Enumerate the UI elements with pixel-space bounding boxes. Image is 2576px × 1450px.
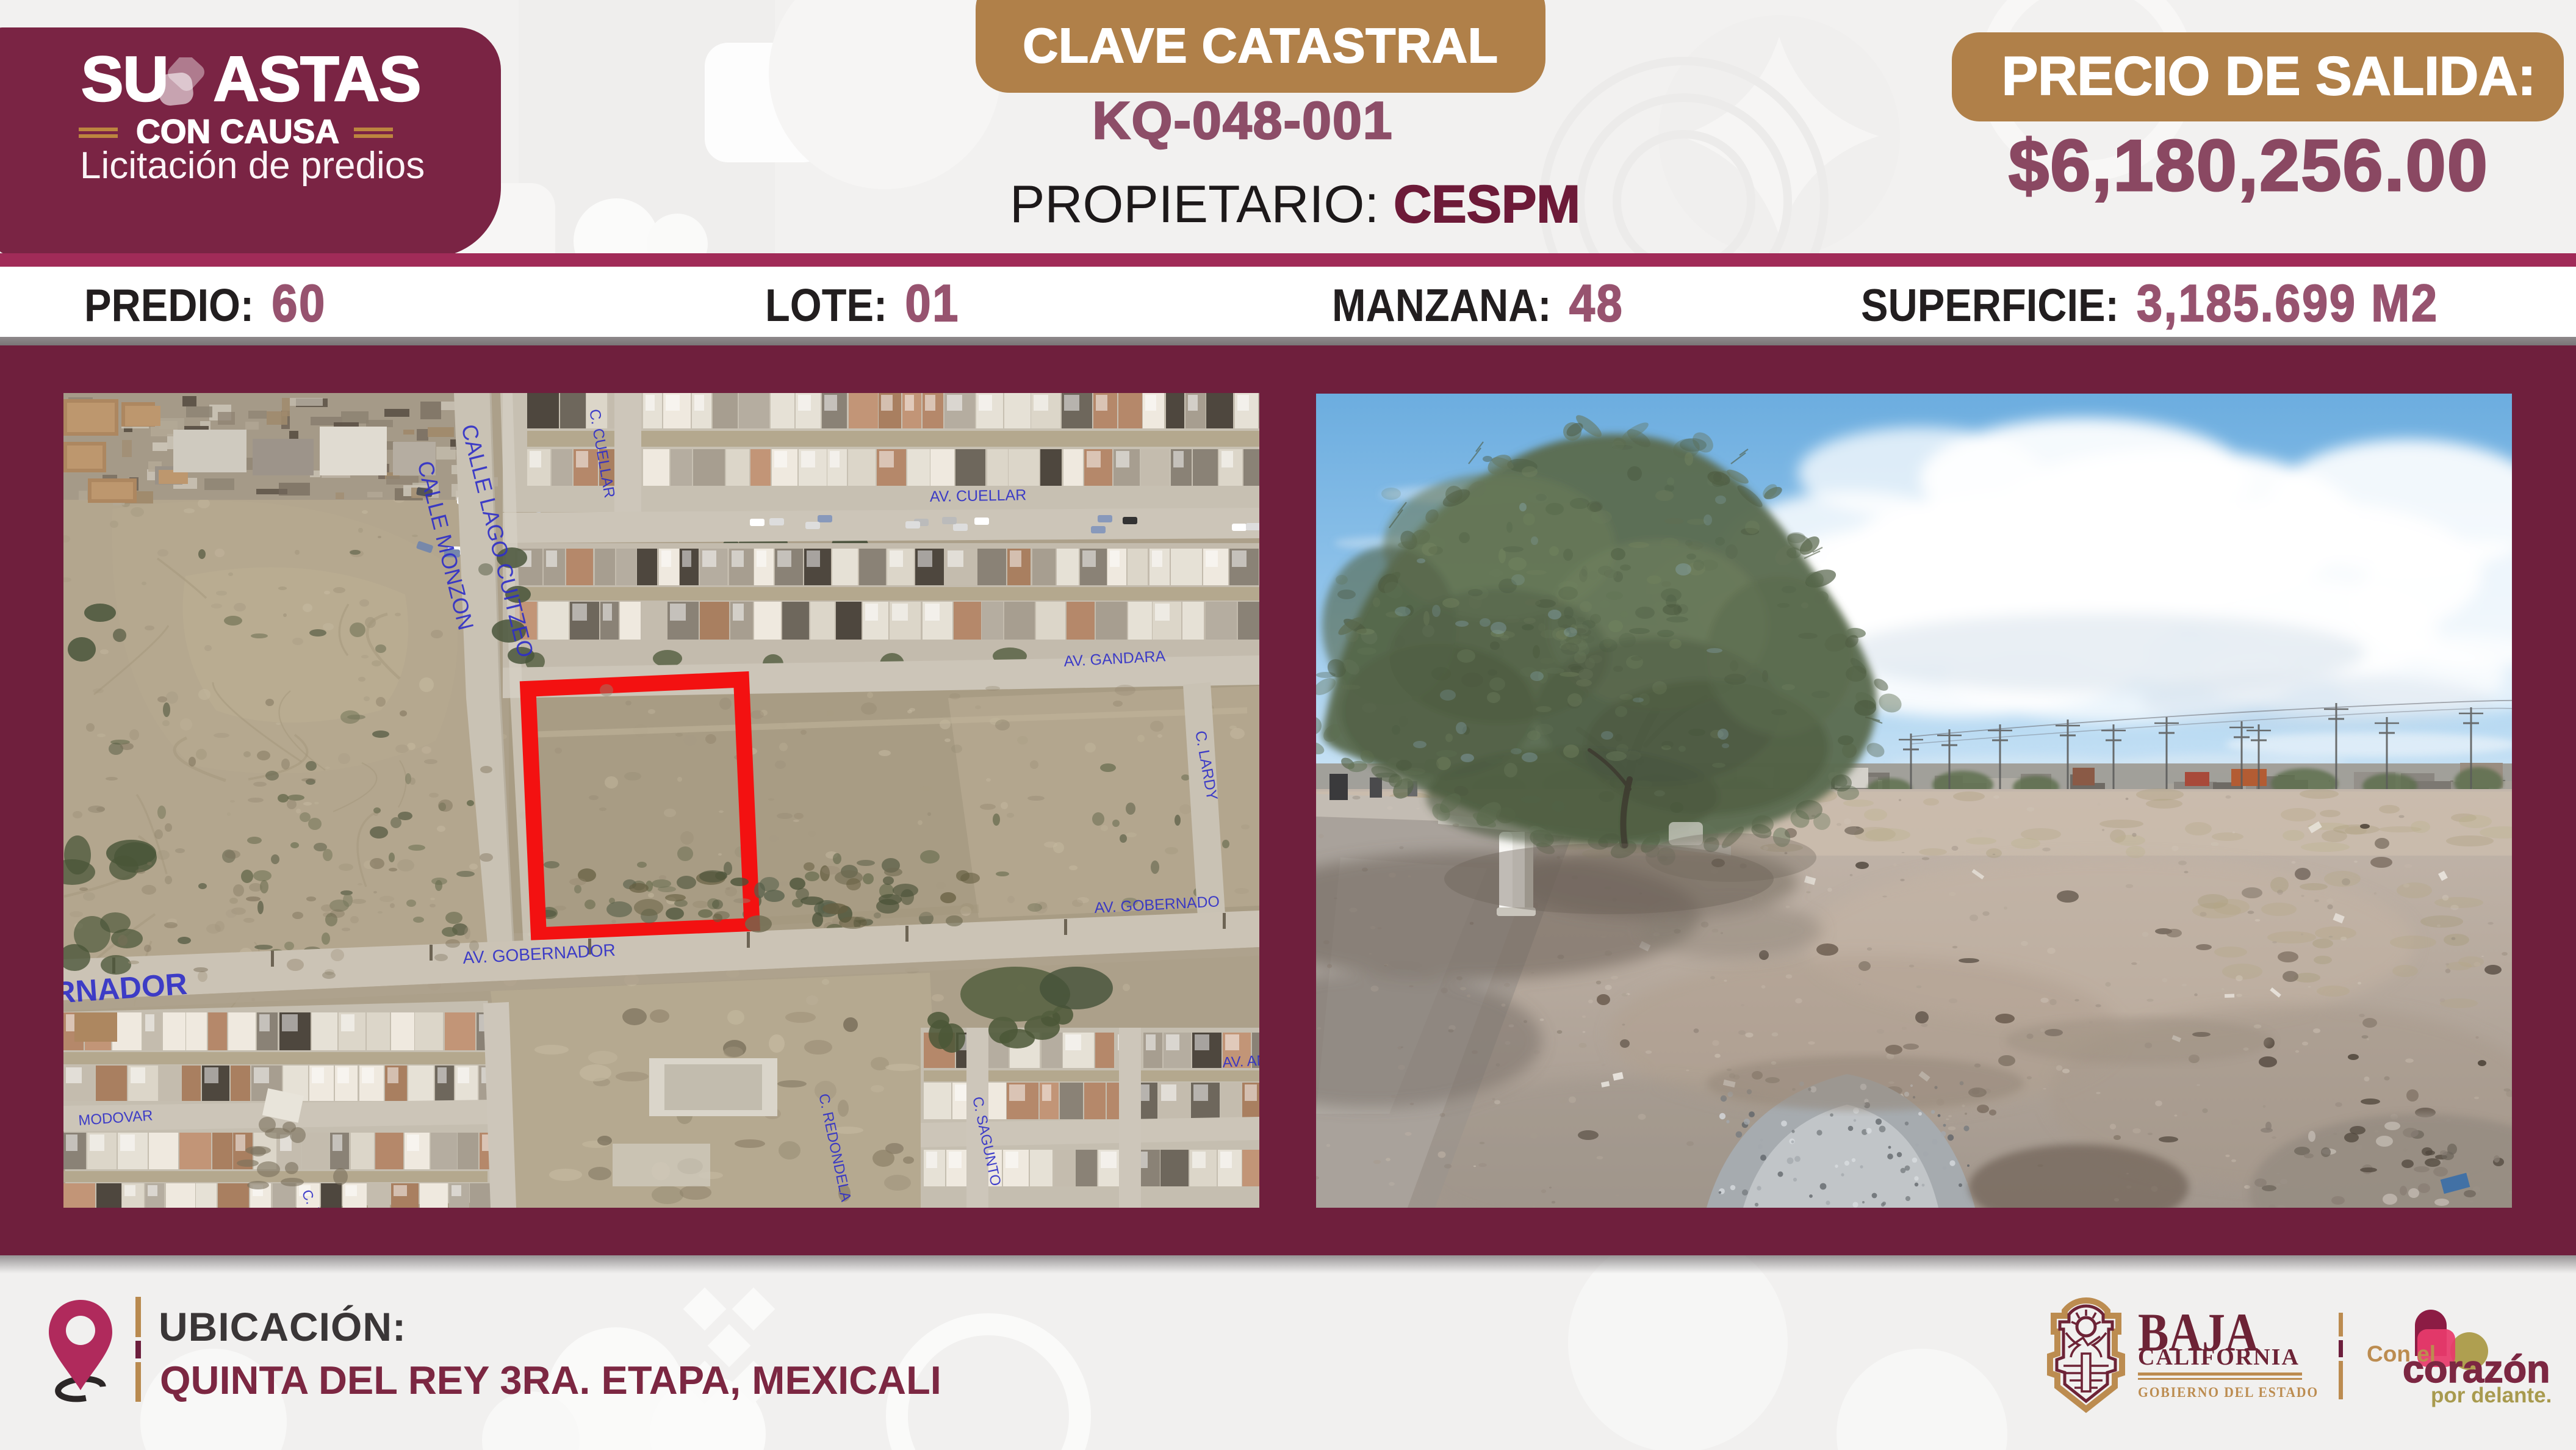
svg-text:AV. AN: AV. AN [1222,1052,1259,1071]
svg-text:AV. CUELLAR: AV. CUELLAR [930,486,1027,505]
